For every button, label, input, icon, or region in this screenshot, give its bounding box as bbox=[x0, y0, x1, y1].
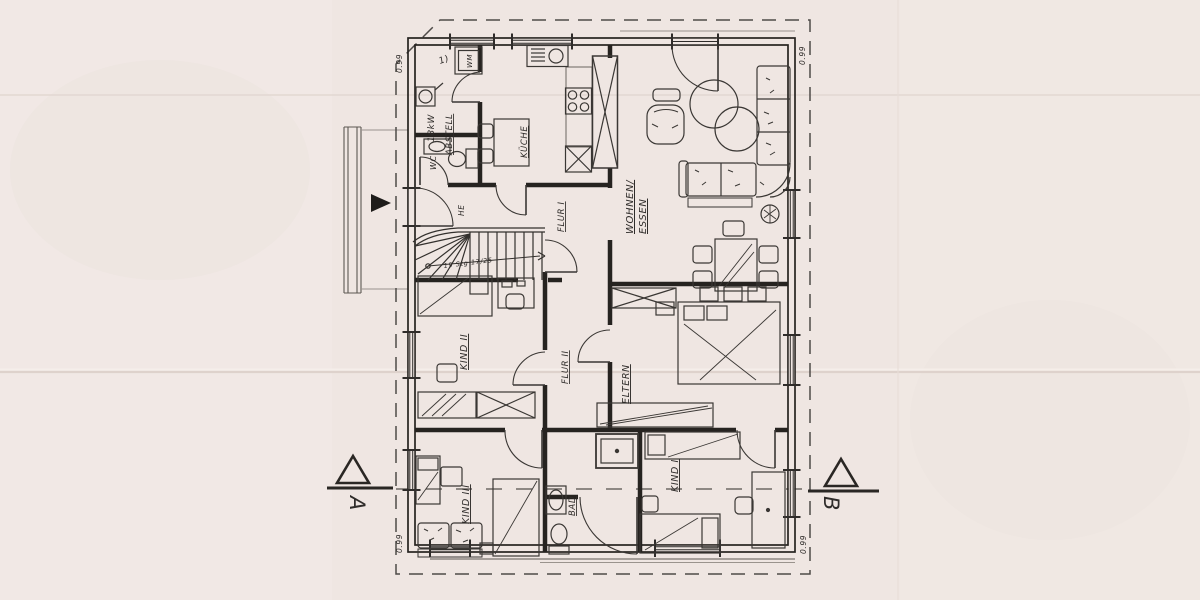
room-label-abstell: ABSTELL bbox=[445, 114, 455, 156]
section-label-b: B bbox=[819, 496, 843, 511]
room-label-wohnen: WOHNEN/ bbox=[625, 179, 636, 234]
room-label-kueche: KÜCHE bbox=[519, 126, 530, 158]
paper-blotch bbox=[10, 60, 310, 280]
room-label-flur2: FLUR II bbox=[561, 350, 571, 384]
room-label-bad: BAD bbox=[568, 496, 578, 516]
section-label-a: A bbox=[345, 494, 369, 511]
room-label-flur1: FLUR I bbox=[557, 201, 567, 232]
washing-machine-label: WM bbox=[466, 54, 474, 68]
room-label-kind1: KIND I bbox=[670, 459, 681, 492]
dim-bottom-right: 0.99 bbox=[799, 535, 808, 554]
paper-blotch bbox=[910, 300, 1190, 540]
room-label-wc: WC bbox=[429, 155, 438, 170]
dim-top-right: 0.99 bbox=[798, 46, 807, 65]
room-label-kind2: KIND II bbox=[459, 334, 470, 370]
room-label-essen: ESSEN bbox=[638, 199, 649, 234]
entrance-label: HE bbox=[457, 204, 466, 216]
dim-bottom-left: 0.99 bbox=[395, 534, 404, 553]
dim-top-left: 0.99 bbox=[395, 54, 404, 73]
scanned-floor-plan-page: A B ABSTELL WC KÜCHE WOHNEN/ ESSEN FLUR … bbox=[0, 0, 1200, 600]
floor-plan-drawing: A B ABSTELL WC KÜCHE WOHNEN/ ESSEN FLUR … bbox=[0, 0, 1200, 600]
room-label-kind3: KIND III bbox=[461, 484, 472, 524]
room-label-eltern: ELTERN bbox=[621, 364, 632, 404]
boiler-label: 18kW bbox=[427, 114, 437, 142]
